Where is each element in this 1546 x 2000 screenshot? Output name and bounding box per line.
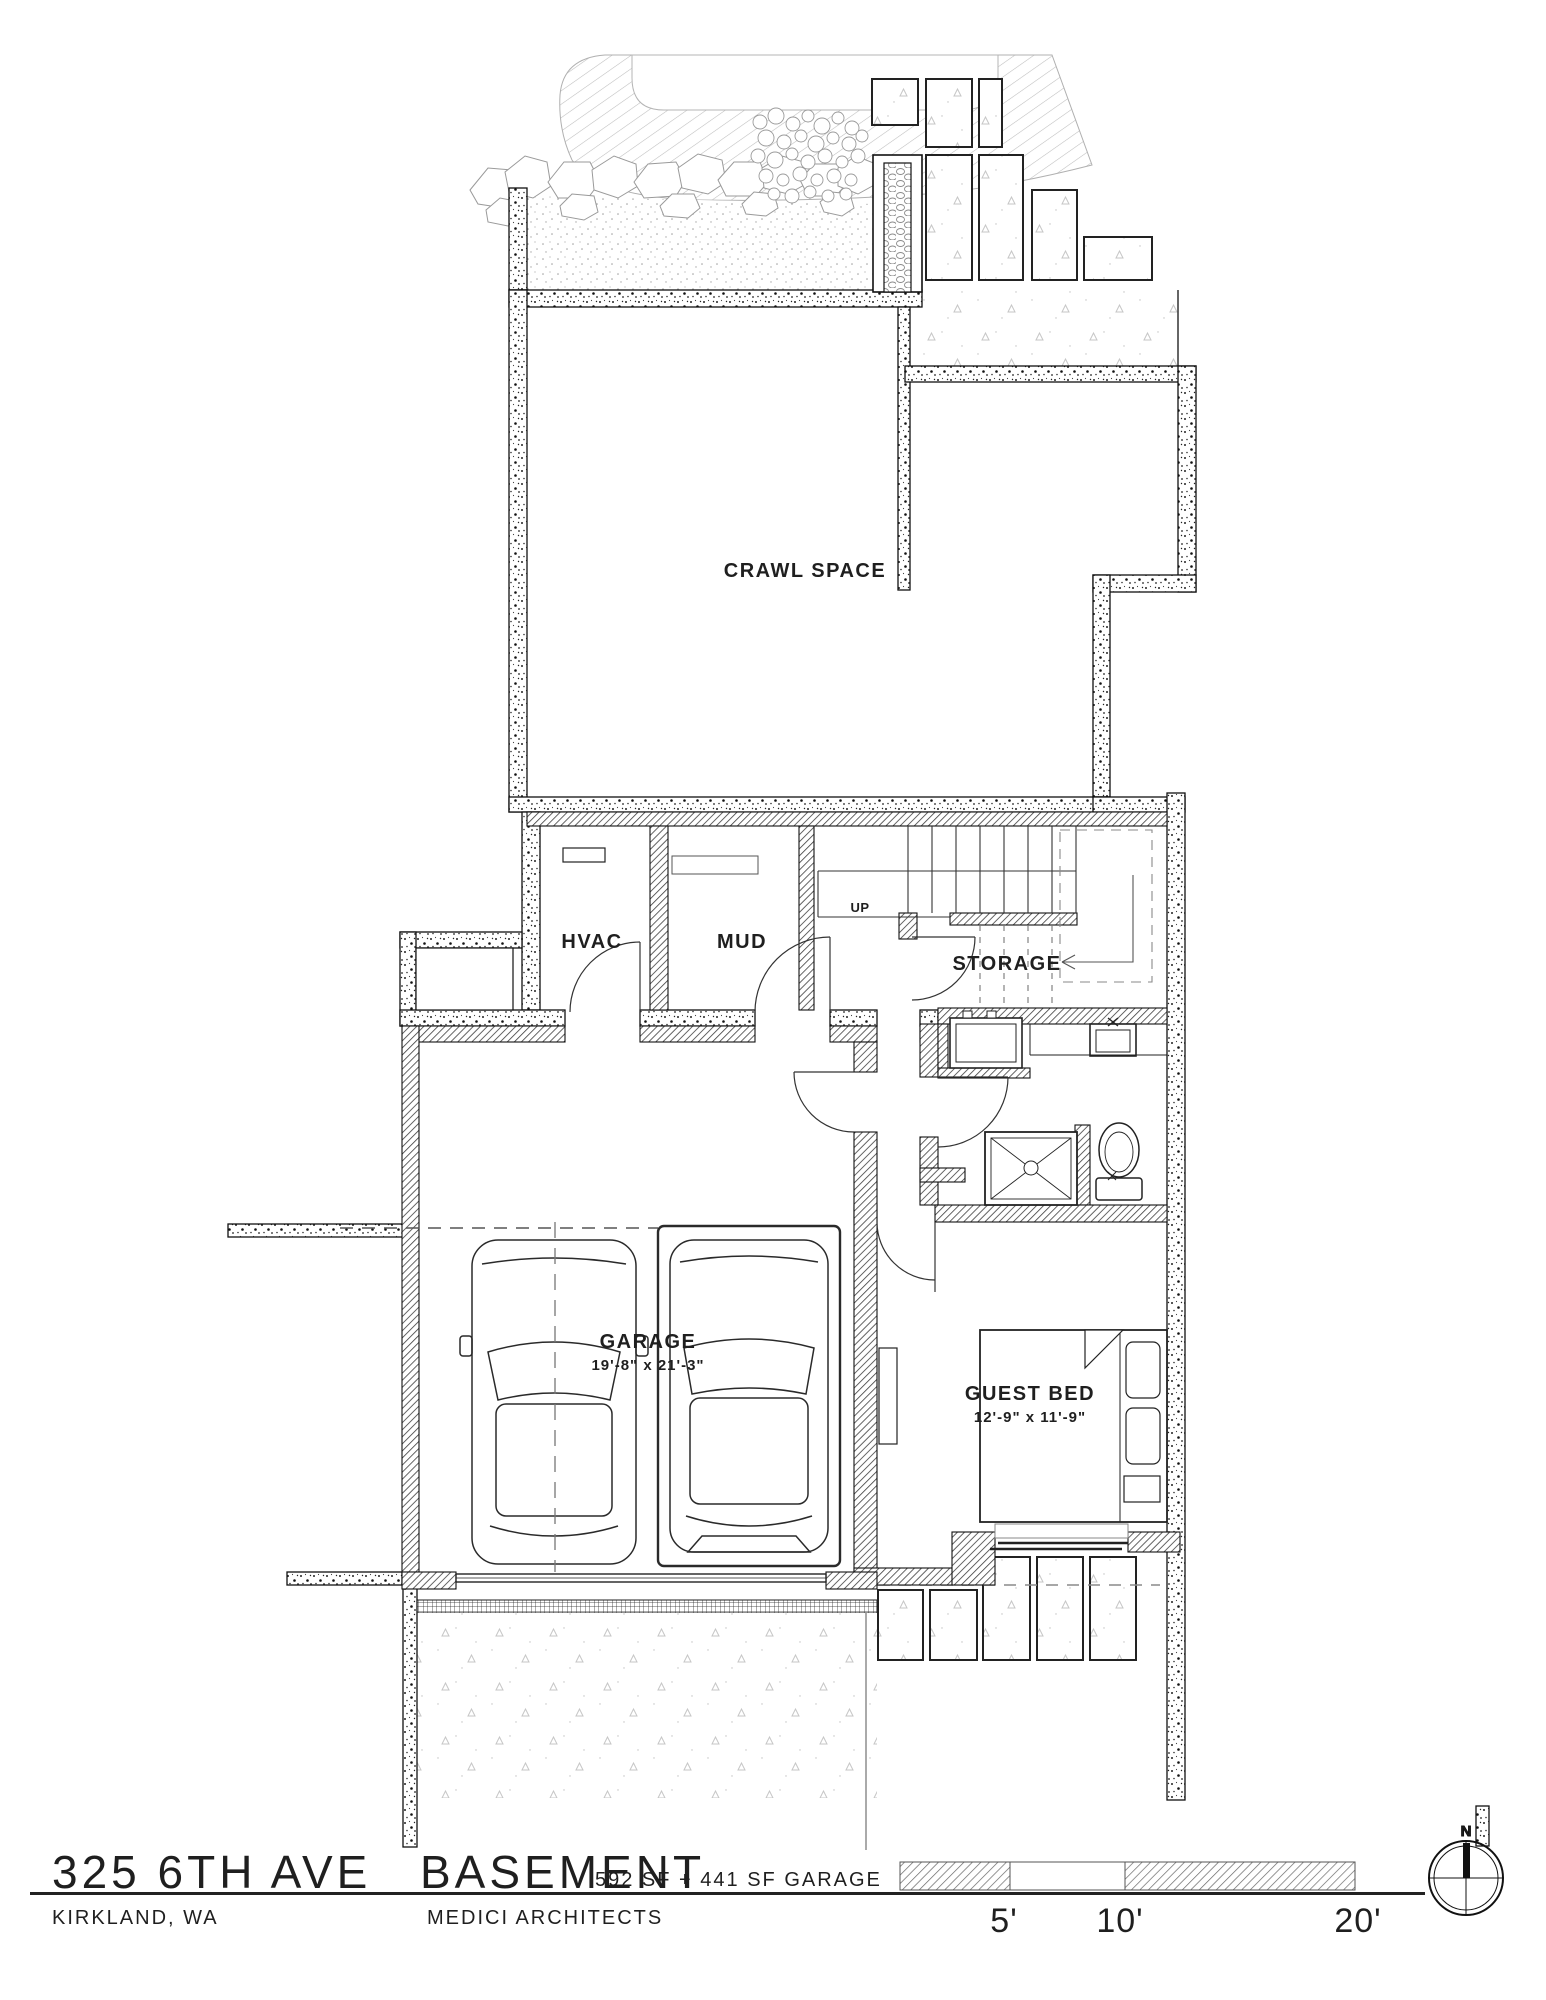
- scale-label-20: 20': [1334, 1902, 1381, 1940]
- mud-bench: [672, 856, 758, 874]
- wall-guest-south-step: [952, 1532, 995, 1585]
- wall-bath-west-a: [920, 1024, 938, 1077]
- wall-stair-mid: [950, 913, 1077, 925]
- garage-label: GARAGE: [600, 1331, 697, 1353]
- scale-label-5: 5': [990, 1902, 1017, 1940]
- wall-crawl-south-inner: [527, 812, 1167, 826]
- guest-bed-dims: 12'-9" x 11'-9": [974, 1409, 1086, 1426]
- car-right: [658, 1226, 840, 1566]
- wall-mud-east: [799, 826, 814, 1010]
- scale-seg-3: [1125, 1862, 1355, 1890]
- wall-crawl-south: [509, 797, 1110, 812]
- scale-seg-2: [1010, 1862, 1125, 1890]
- wall-crawl-divider: [898, 307, 910, 590]
- driveway-texture-band: [404, 1600, 877, 1613]
- site-wall-driveway: [403, 1585, 417, 1847]
- project-address: 325 6TH AVE: [52, 1846, 371, 1898]
- title-rule: [30, 1892, 1425, 1895]
- toilet: [1096, 1123, 1142, 1200]
- wall-crawl-north: [509, 290, 922, 307]
- driveway: [417, 1613, 877, 1798]
- wall-hall-west-b: [854, 1132, 877, 1572]
- wall-rooms-south-c: [830, 1010, 877, 1026]
- water-heater: [950, 1011, 1022, 1068]
- area-note: 592 SF + 441 SF GARAGE: [595, 1869, 882, 1891]
- site-wall-garage-door: [287, 1572, 402, 1585]
- wall-east-mid: [1093, 575, 1110, 797]
- wall-hall-west-a: [854, 1042, 877, 1072]
- wall-wh-closet-a: [938, 1024, 948, 1074]
- wall-garage-west: [402, 1026, 419, 1572]
- shower: [985, 1132, 1077, 1205]
- site-wall-fragment: [1476, 1806, 1489, 1846]
- upper-concrete-patio: [922, 290, 1178, 366]
- wall-hvac-west: [522, 812, 540, 1010]
- wall-top-left-pier: [509, 188, 527, 290]
- wall-rooms-south-a: [400, 1010, 565, 1026]
- wall-garage-north-c: [830, 1026, 877, 1042]
- wall-garage-door-stub-e: [826, 1572, 877, 1589]
- dresser: [879, 1348, 897, 1444]
- wall-garage-north-a: [416, 1026, 565, 1042]
- pillow-2: [1126, 1408, 1160, 1464]
- guest-step: [995, 1524, 1128, 1538]
- wall-hvac-east: [650, 826, 668, 1010]
- north-label: N: [1461, 1823, 1472, 1840]
- pillow-1: [1126, 1342, 1160, 1398]
- wall-lightwell-north: [400, 932, 522, 948]
- north-needle: [1463, 1843, 1470, 1878]
- sink: [1090, 1018, 1136, 1056]
- wall-east-main: [1167, 793, 1185, 1800]
- bed-shelf: [1124, 1476, 1160, 1502]
- up-label: UP: [850, 900, 869, 915]
- basement-floor-plan-drawing: CRAWL SPACE HVAC MUD STORAGE UP GARAGE 1…: [0, 0, 1546, 2000]
- wall-garage-north-b: [640, 1026, 755, 1042]
- mud-label: MUD: [717, 931, 767, 953]
- crawl-space-label: CRAWL SPACE: [724, 560, 886, 582]
- garage-dims: 19'-8" x 21'-3": [591, 1357, 704, 1374]
- storage-label: STORAGE: [952, 953, 1061, 975]
- wall-rooms-south-b: [640, 1010, 755, 1026]
- wall-east-upper: [1178, 366, 1196, 592]
- wall-crawl-west: [509, 290, 527, 812]
- site-wall-west: [228, 1224, 404, 1237]
- lightwell-inner: [416, 948, 513, 1010]
- car-left: [460, 1240, 648, 1564]
- firm-name: MEDICI ARCHITECTS: [427, 1907, 663, 1929]
- pebble-wall: [873, 155, 922, 292]
- wall-guest-north-b: [935, 1205, 1167, 1222]
- scale-label-10: 10': [1096, 1902, 1143, 1940]
- floor-plan-sheet: CRAWL SPACE HVAC MUD STORAGE UP GARAGE 1…: [0, 0, 1546, 2000]
- wall-bath-wing: [920, 1168, 965, 1182]
- wall-garage-door-stub-w: [402, 1572, 456, 1589]
- wall-guest-south-b: [1128, 1532, 1180, 1552]
- hvac-equipment: [563, 848, 605, 862]
- hvac-label: HVAC: [561, 931, 622, 953]
- scale-seg-1: [900, 1862, 1010, 1890]
- project-city: KIRKLAND, WA: [52, 1907, 219, 1929]
- guest-bed-label: GUEST BED: [965, 1383, 1095, 1405]
- wall-patio-south: [905, 366, 1196, 382]
